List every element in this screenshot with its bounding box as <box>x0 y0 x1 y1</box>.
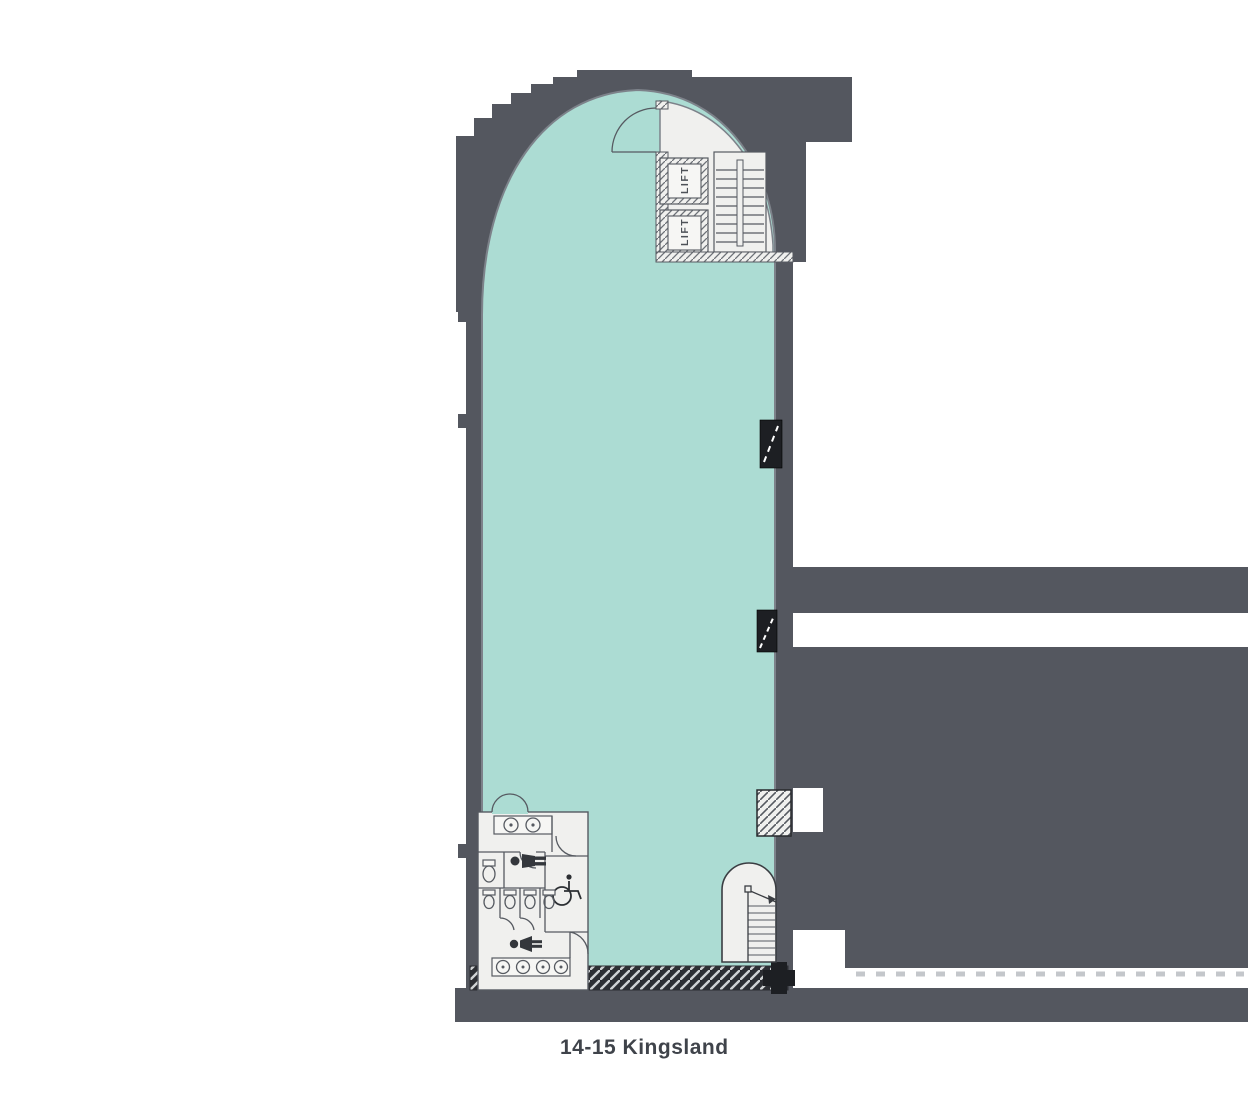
toilets-door-gap <box>492 809 528 814</box>
core-wall <box>656 101 668 109</box>
right-wall <box>775 238 793 990</box>
lift-1: LIFT <box>660 158 708 204</box>
main-staircase <box>714 152 766 252</box>
bottom-wall-band <box>455 988 1248 1022</box>
wc-cistern <box>483 860 495 866</box>
floor-plan-page: LIFT LIFT <box>0 0 1248 1120</box>
wall-opening <box>793 788 823 832</box>
lift-2: LIFT <box>660 210 708 256</box>
basin-tap <box>509 823 512 826</box>
stair-stringer <box>737 160 743 246</box>
lift-2-label: LIFT <box>679 218 691 246</box>
core-bottom-wall <box>656 252 793 262</box>
left-wall-jog <box>458 306 467 322</box>
lift-1-label: LIFT <box>679 166 691 194</box>
masonry-pier <box>757 790 791 836</box>
toilets-block <box>478 794 588 990</box>
neighbour-band-upper <box>793 567 1248 613</box>
stair-newel <box>745 886 751 892</box>
wash-counter <box>494 816 552 834</box>
basin-tap <box>531 823 534 826</box>
left-wall-jog <box>458 844 467 858</box>
neighbour-mass <box>793 647 1248 968</box>
floor-plan: LIFT LIFT <box>0 0 1248 1120</box>
riser-1 <box>760 420 782 468</box>
feature-stair <box>722 863 776 962</box>
plan-title: 14-15 Kingsland <box>560 1036 729 1059</box>
left-wall-jog <box>458 414 467 428</box>
